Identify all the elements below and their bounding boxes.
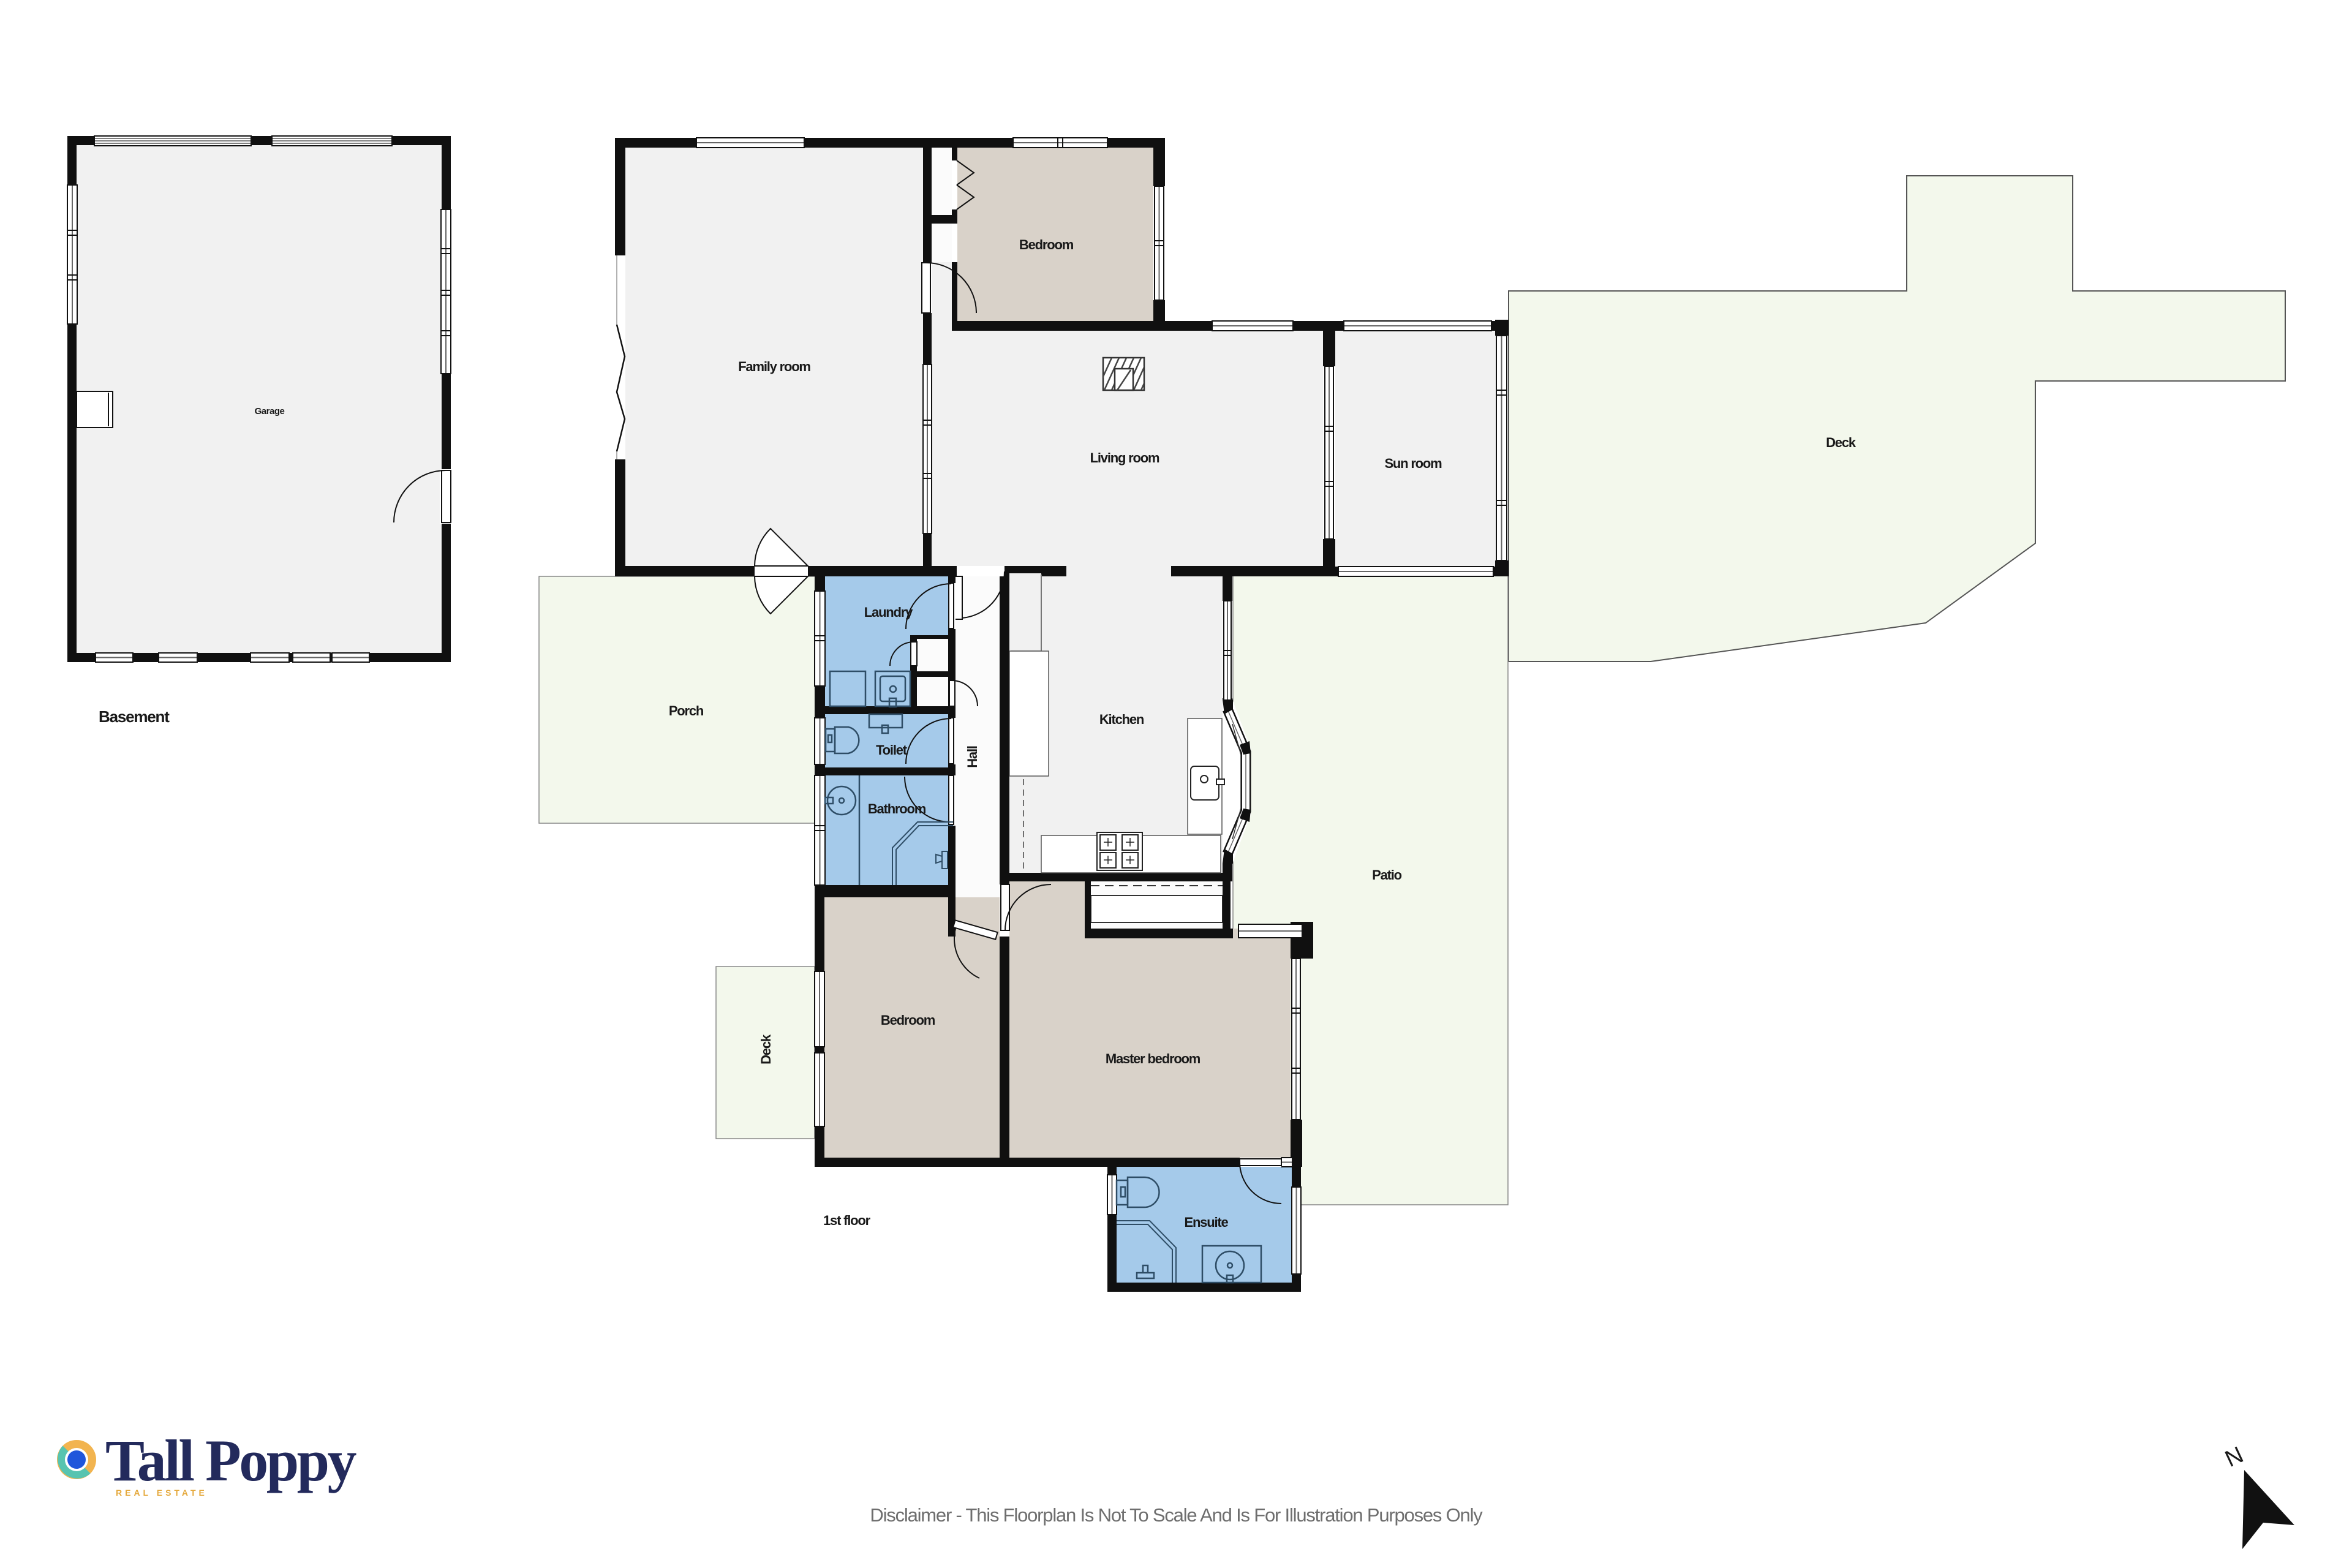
svg-text:REAL ESTATE: REAL ESTATE (116, 1488, 208, 1498)
svg-text:Hall: Hall (965, 746, 980, 768)
svg-text:Tall Poppy: Tall Poppy (105, 1428, 356, 1493)
svg-text:Bedroom: Bedroom (881, 1012, 935, 1028)
svg-text:Bathroom: Bathroom (868, 801, 926, 816)
svg-text:Deck: Deck (1826, 435, 1856, 450)
svg-text:Kitchen: Kitchen (1099, 712, 1144, 727)
svg-text:Patio: Patio (1372, 867, 1402, 883)
svg-text:Disclaimer - This Floorplan Is: Disclaimer - This Floorplan Is Not To Sc… (870, 1504, 1483, 1526)
svg-text:1st floor: 1st floor (823, 1213, 871, 1228)
svg-text:Laundry: Laundry (864, 605, 913, 620)
svg-text:Garage: Garage (255, 406, 285, 417)
svg-text:Ensuite: Ensuite (1184, 1215, 1228, 1230)
svg-text:Porch: Porch (669, 703, 704, 718)
svg-text:Sun room: Sun room (1384, 456, 1442, 471)
svg-text:Toilet: Toilet (876, 742, 908, 758)
svg-text:Deck: Deck (758, 1034, 774, 1065)
svg-text:Master bedroom: Master bedroom (1106, 1051, 1200, 1066)
svg-text:Living room: Living room (1090, 450, 1159, 466)
svg-text:Basement: Basement (99, 707, 170, 726)
svg-text:Bedroom: Bedroom (1019, 237, 1074, 252)
svg-text:Family room: Family room (738, 359, 810, 374)
